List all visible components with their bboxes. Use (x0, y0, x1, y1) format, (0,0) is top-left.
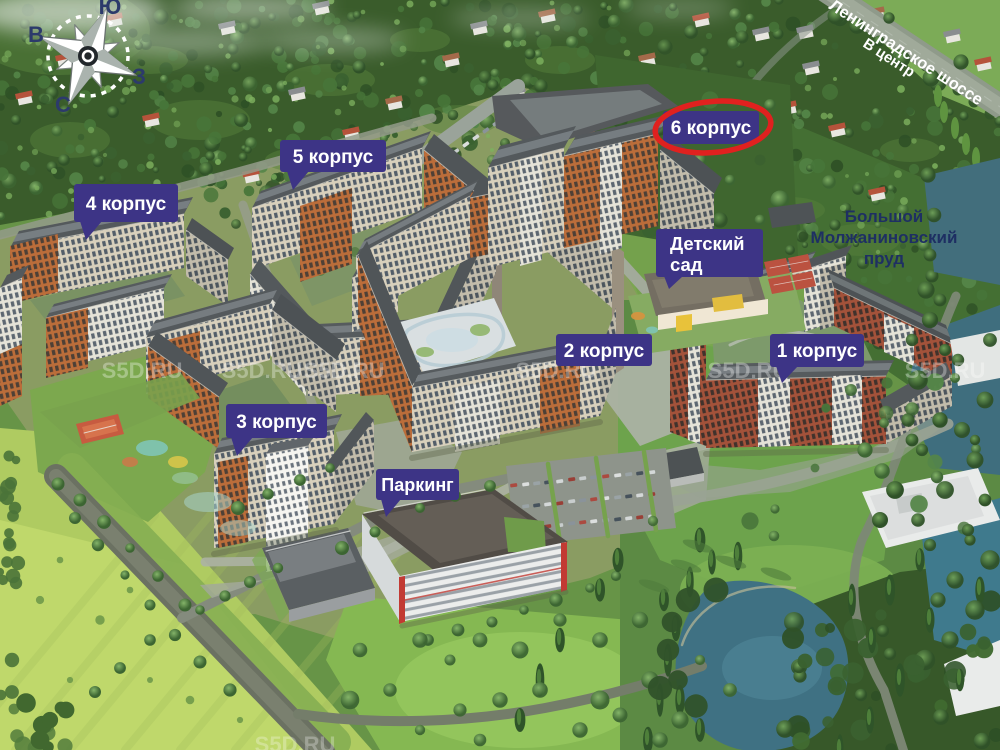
svg-text:Большой: Большой (845, 207, 923, 226)
svg-text:4 корпус: 4 корпус (86, 194, 167, 215)
svg-text:S5D.RU: S5D.RU (222, 358, 303, 383)
svg-text:3 корпус: 3 корпус (236, 412, 317, 433)
svg-text:S5D.RU: S5D.RU (905, 358, 986, 383)
svg-text:S5D.RU: S5D.RU (304, 358, 385, 383)
svg-text:пруд: пруд (864, 249, 904, 268)
svg-text:сад: сад (670, 254, 703, 275)
svg-text:В: В (28, 22, 44, 47)
svg-text:S5D.RU: S5D.RU (102, 358, 183, 383)
svg-text:Молжаниновский: Молжаниновский (811, 228, 958, 247)
svg-text:С: С (55, 92, 71, 117)
svg-text:Паркинг: Паркинг (381, 475, 454, 495)
svg-text:5 корпус: 5 корпус (293, 147, 374, 168)
svg-text:З: З (132, 64, 146, 89)
svg-text:2 корпус: 2 корпус (564, 341, 645, 362)
svg-text:Детский: Детский (670, 233, 745, 254)
svg-text:6 корпус: 6 корпус (671, 118, 752, 139)
svg-text:S5D.RU: S5D.RU (255, 732, 336, 750)
svg-text:1 корпус: 1 корпус (777, 341, 858, 362)
svg-text:Ю: Ю (99, 0, 122, 19)
